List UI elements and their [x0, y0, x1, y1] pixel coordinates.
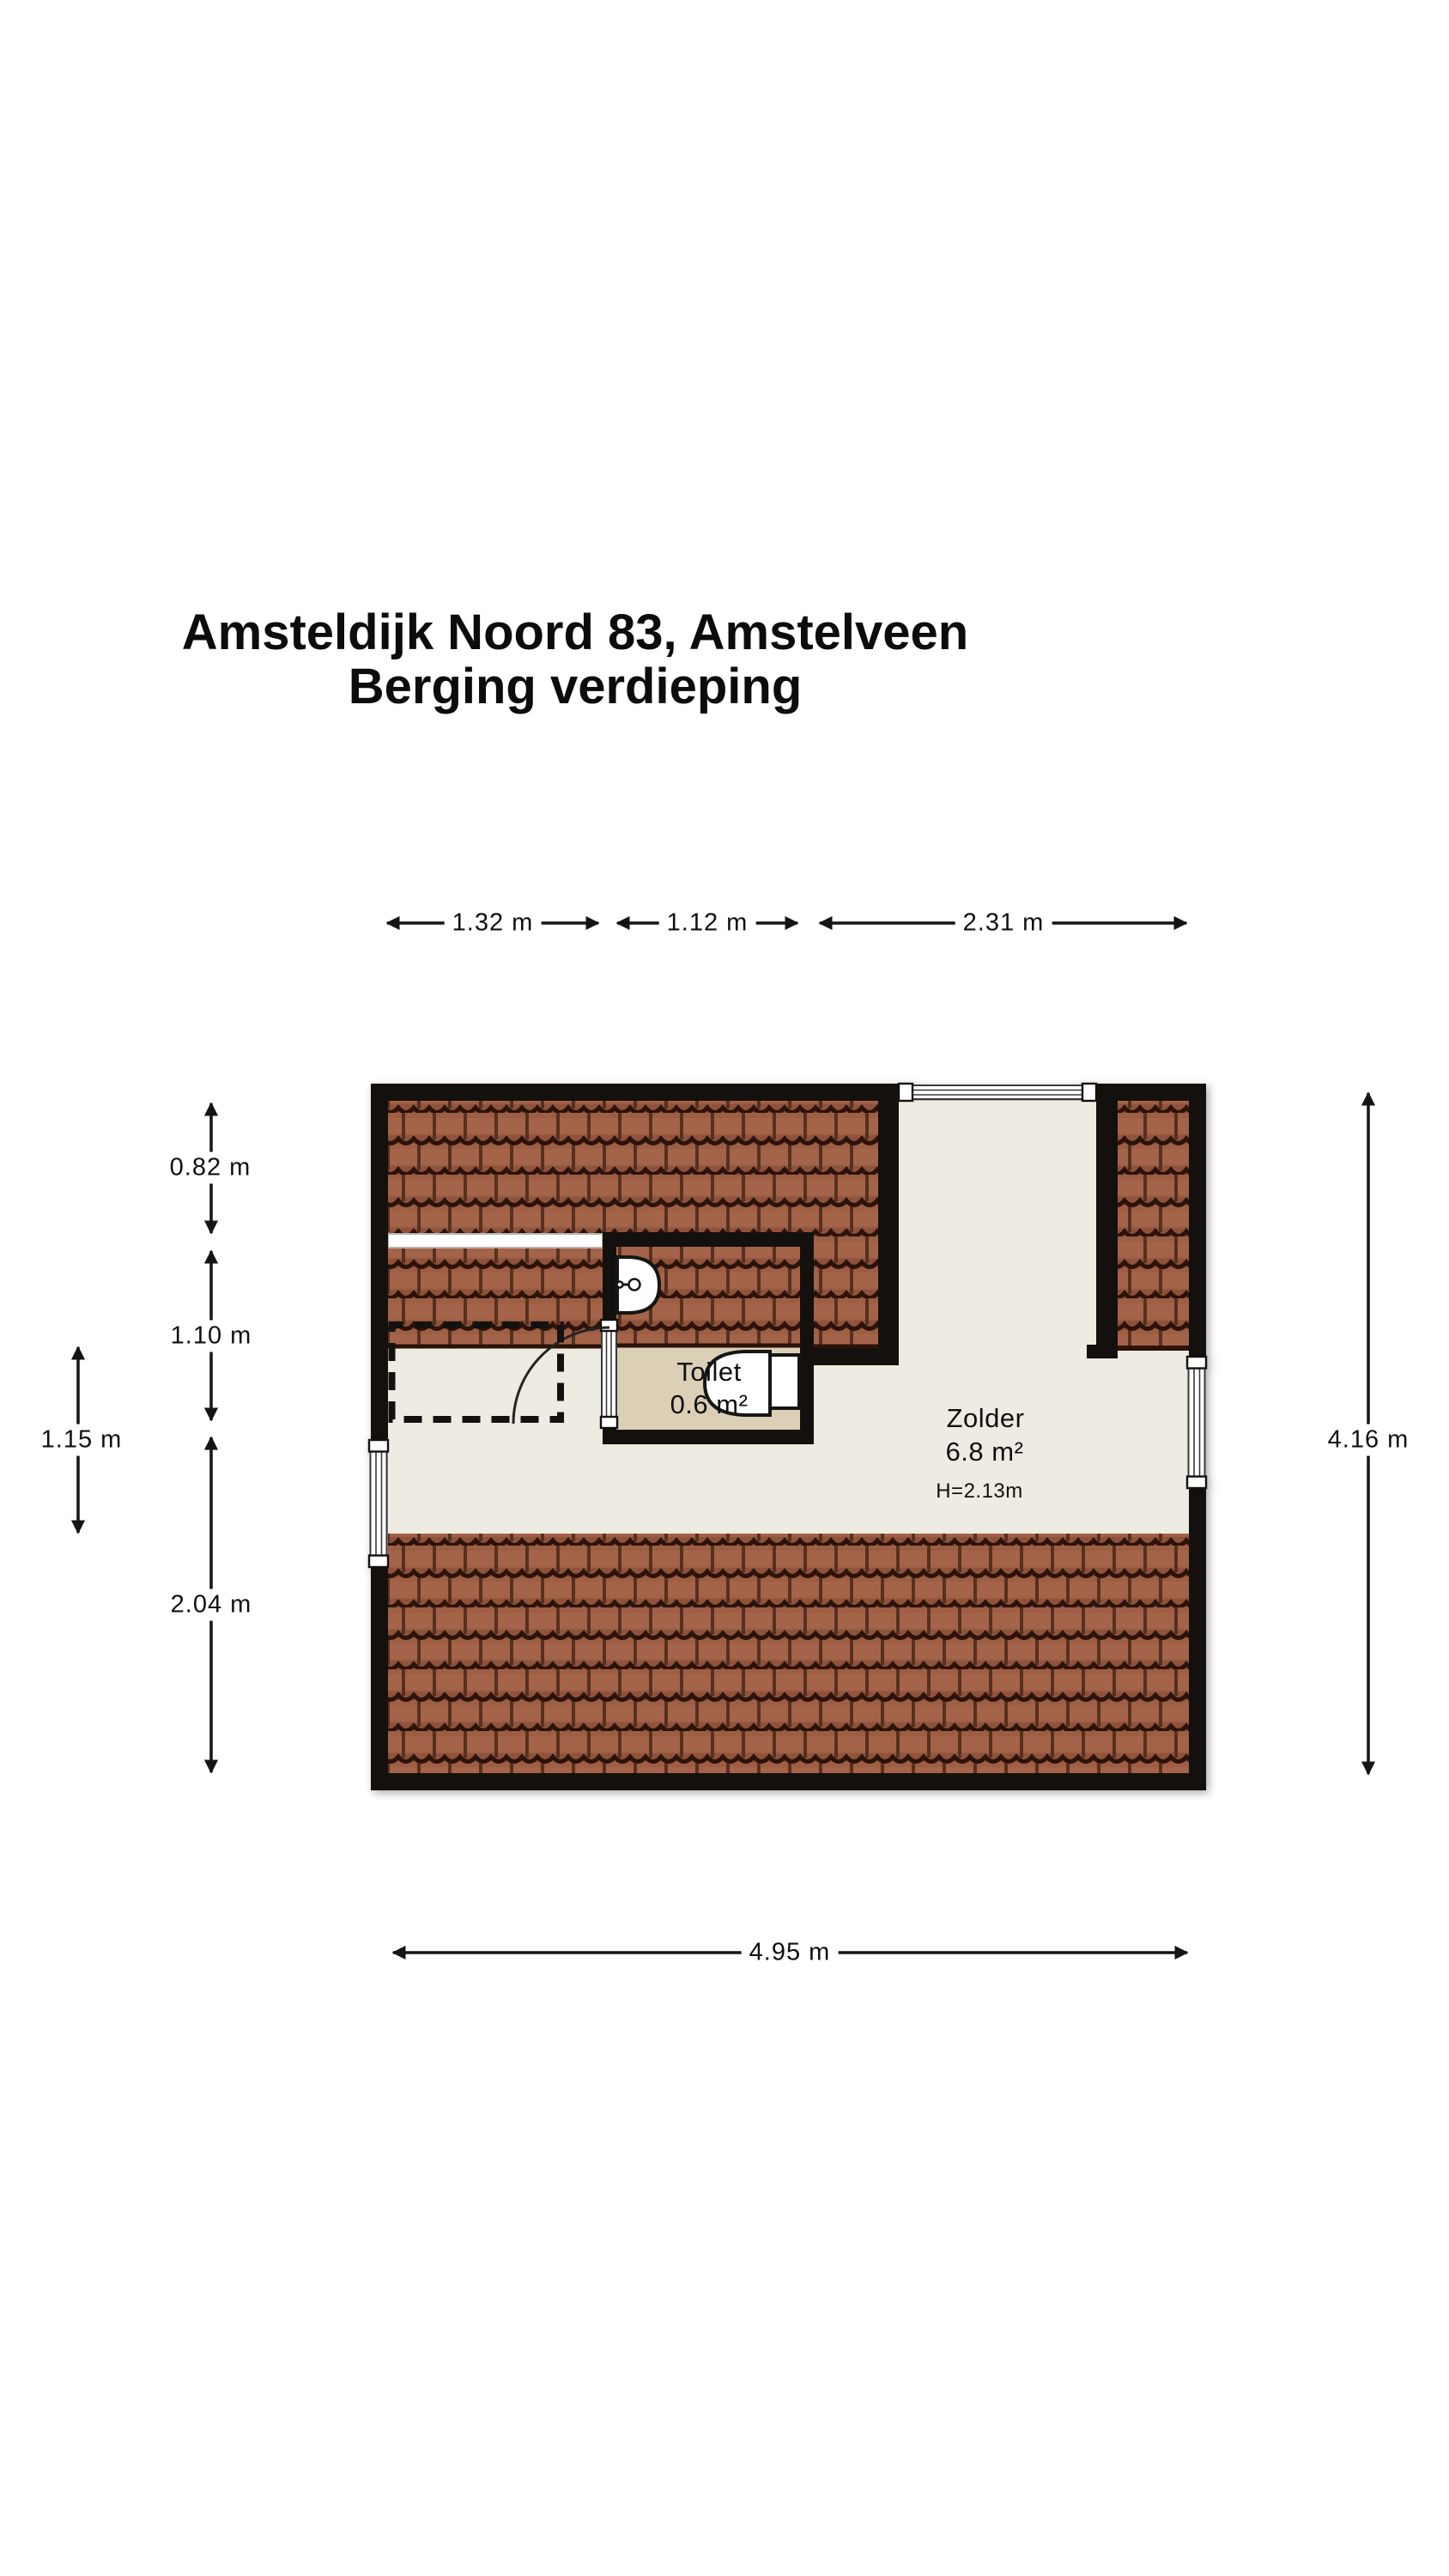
roof-lower: [388, 1534, 1190, 1773]
room-label-toilet: Toilet: [676, 1357, 741, 1388]
window-right: [1187, 1357, 1206, 1488]
room-area-zolder: 6.8 m²: [946, 1437, 1024, 1467]
dim-label-left-inner: 1.15 m: [33, 1425, 130, 1456]
dim-label-right: 4.16 m: [1320, 1425, 1417, 1456]
dim-label-top-2: 1.12 m: [659, 908, 756, 939]
sink: [617, 1257, 660, 1313]
dim-label-top-3: 2.31 m: [955, 908, 1052, 939]
page-title-line1: Amsteldijk Noord 83, Amstelveen: [182, 605, 968, 659]
floorplan-page: Amsteldijk Noord 83, Amstelveen Berging …: [0, 0, 1449, 2576]
window-left: [369, 1440, 388, 1567]
page-title: Amsteldijk Noord 83, Amstelveen Berging …: [182, 605, 968, 714]
floorplan-svg: [0, 0, 1449, 2576]
toilet-door: [601, 1320, 617, 1428]
knee-wall: [388, 1234, 603, 1248]
roof-upper-right: [1118, 1099, 1190, 1346]
window-top: [899, 1084, 1096, 1101]
dim-label-left-1: 0.82 m: [162, 1152, 259, 1184]
room-label-zolder: Zolder: [947, 1403, 1025, 1434]
dim-label-left-2: 1.10 m: [163, 1321, 260, 1352]
room-area-toilet: 0.6 m²: [670, 1389, 749, 1420]
dim-label-left-3: 2.04 m: [163, 1589, 260, 1621]
dim-label-bottom: 4.95 m: [742, 1937, 839, 1969]
floorplan-drawing: [369, 1084, 1206, 1790]
room-height-zolder: H=2.13m: [936, 1479, 1023, 1504]
dim-label-top-1: 1.32 m: [445, 908, 542, 939]
page-title-line2: Berging verdieping: [182, 659, 968, 714]
